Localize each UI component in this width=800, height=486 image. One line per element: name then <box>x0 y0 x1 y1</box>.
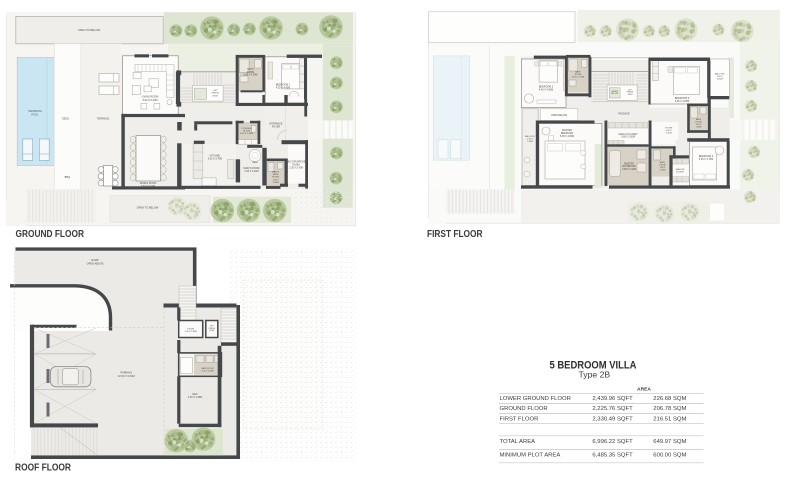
svg-text:2,439.96 SQFT: 2,439.96 SQFT <box>592 396 633 402</box>
svg-text:6,485.35 SQFT: 6,485.35 SQFT <box>592 453 633 459</box>
svg-text:2.30M: 2.30M <box>273 182 279 184</box>
svg-text:3.65 X 4.70M: 3.65 X 4.70M <box>699 158 713 161</box>
svg-text:TERRACE: TERRACE <box>97 117 110 121</box>
svg-text:MASTER: MASTER <box>624 162 634 165</box>
svg-text:PRESS: PRESS <box>212 93 220 95</box>
svg-text:OPEN TO BELOW: OPEN TO BELOW <box>78 28 101 32</box>
svg-text:6,996.22 SQFT: 6,996.22 SQFT <box>592 439 633 445</box>
svg-text:SIGN: SIGN <box>628 94 633 96</box>
svg-text:649.97 SQM: 649.97 SQM <box>653 439 686 445</box>
svg-text:PASSAGE: PASSAGE <box>618 112 630 115</box>
svg-text:ROOM: ROOM <box>247 72 254 74</box>
svg-text:10.50 X 6.00M: 10.50 X 6.00M <box>118 374 135 378</box>
svg-text:MULTI-PURPOSE: MULTI-PURPOSE <box>287 162 306 164</box>
svg-text:3.80 X 2.00M: 3.80 X 2.00M <box>621 137 635 139</box>
svg-text:206.78 SQM: 206.78 SQM <box>653 406 686 412</box>
svg-text:216.51 SQM: 216.51 SQM <box>653 416 686 422</box>
svg-text:PARKING: PARKING <box>121 371 132 375</box>
svg-text:MINIMUM PLOT AREA: MINIMUM PLOT AREA <box>500 453 561 459</box>
svg-text:LOWER GROUND FLOOR: LOWER GROUND FLOOR <box>500 396 571 402</box>
svg-text:FOYER: FOYER <box>272 125 281 128</box>
svg-text:5.45 X 4.80M: 5.45 X 4.80M <box>560 135 574 138</box>
svg-text:3.00 X 4.45M: 3.00 X 4.45M <box>188 396 202 399</box>
svg-text:CLOSET: CLOSET <box>676 171 685 173</box>
svg-text:BATHROOM: BATHROOM <box>622 165 635 168</box>
svg-text:BBQ: BBQ <box>65 175 70 179</box>
svg-text:BATH: BATH <box>248 68 254 71</box>
svg-text:2,330.49 SQFT: 2,330.49 SQFT <box>592 416 633 422</box>
svg-text:LIFT: LIFT <box>213 90 218 92</box>
svg-text:BALCONY: BALCONY <box>525 135 536 138</box>
svg-text:2.00M: 2.00M <box>666 133 672 135</box>
svg-text:MAID'S: MAID'S <box>272 171 280 174</box>
svg-text:WALK IN: WALK IN <box>676 168 685 171</box>
svg-text:DECK: DECK <box>62 117 69 121</box>
svg-text:OPEN BELOW: OPEN BELOW <box>551 114 568 117</box>
svg-text:7.00M: 7.00M <box>527 141 533 143</box>
svg-text:SIGN: SIGN <box>213 95 219 97</box>
svg-text:2.00 X 3.20M: 2.00 X 3.20M <box>244 170 258 173</box>
svg-text:AREA: AREA <box>637 386 652 391</box>
svg-text:ROOM: ROOM <box>243 131 250 133</box>
svg-text:SIGN: SIGN <box>209 330 214 332</box>
svg-text:POWDER: POWDER <box>242 128 252 130</box>
svg-text:2.03 X 2.06M: 2.03 X 2.06M <box>240 133 253 135</box>
svg-text:2,225.76 SQFT: 2,225.76 SQFT <box>592 406 633 412</box>
svg-text:GROUND FLOOR: GROUND FLOOR <box>16 229 85 240</box>
svg-text:FIRST FLOOR: FIRST FLOOR <box>500 416 539 422</box>
svg-text:RAMP: RAMP <box>91 258 99 262</box>
svg-text:4.60M: 4.60M <box>717 79 723 81</box>
svg-text:BATH: BATH <box>575 71 581 74</box>
svg-text:2.80 X 4.20M: 2.80 X 4.20M <box>244 75 258 77</box>
svg-text:2.50M: 2.50M <box>696 127 702 129</box>
svg-text:2.80 X 2.00M: 2.80 X 2.00M <box>572 77 585 79</box>
svg-text:4.45 X 4.50M: 4.45 X 4.50M <box>539 88 553 91</box>
svg-text:POOL: POOL <box>31 113 39 117</box>
svg-text:226.68 SQM: 226.68 SQM <box>653 396 686 402</box>
svg-text:TOTAL AREA: TOTAL AREA <box>500 439 536 445</box>
svg-text:600.00 SQM: 600.00 SQM <box>653 453 686 459</box>
svg-text:2.00 X 1.80M: 2.00 X 1.80M <box>185 331 197 333</box>
svg-text:2.35 X 3.70M: 2.35 X 3.70M <box>289 167 303 169</box>
svg-text:BALCONY: BALCONY <box>715 73 726 76</box>
svg-text:BELOW: BELOW <box>611 93 618 95</box>
svg-text:2.00 X 1.80M: 2.00 X 1.80M <box>202 370 214 372</box>
svg-text:BATH: BATH <box>273 173 279 176</box>
svg-text:3.60 X 3.70M: 3.60 X 3.70M <box>208 158 222 161</box>
svg-text:2.70M: 2.70M <box>660 170 666 172</box>
svg-text:5.60 X 6.40M: 5.60 X 6.40M <box>143 99 158 102</box>
svg-text:OPEN TO BELOW: OPEN TO BELOW <box>137 205 159 209</box>
svg-text:Type 2B: Type 2B <box>579 369 611 379</box>
svg-text:WALK IN CLOSET: WALK IN CLOSET <box>618 133 638 136</box>
svg-text:WASH: WASH <box>252 161 258 164</box>
svg-text:3.45 X 4.60M: 3.45 X 4.60M <box>675 100 689 103</box>
svg-text:ROOM: ROOM <box>292 164 299 166</box>
svg-text:4.20 X 4.40M: 4.20 X 4.40M <box>276 87 290 90</box>
svg-text:SWIMMING: SWIMMING <box>28 109 42 113</box>
svg-text:ROOF FLOOR: ROOF FLOOR <box>15 463 72 474</box>
svg-text:FIRST FLOOR: FIRST FLOOR <box>427 229 483 240</box>
svg-text:3.80 X 3.10M: 3.80 X 3.10M <box>622 169 636 171</box>
svg-text:GROUND FLOOR: GROUND FLOOR <box>500 406 548 412</box>
svg-text:3.60 X 6.20M: 3.60 X 6.20M <box>141 185 155 188</box>
svg-text:OPEN ABOVE: OPEN ABOVE <box>87 261 104 265</box>
